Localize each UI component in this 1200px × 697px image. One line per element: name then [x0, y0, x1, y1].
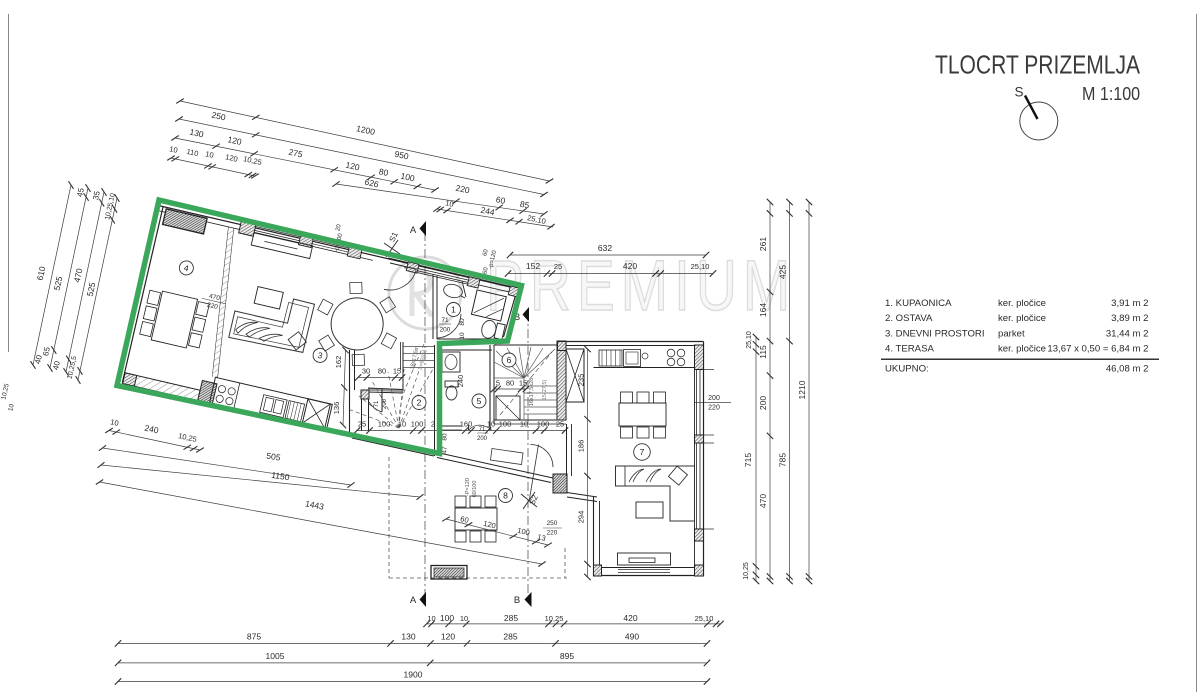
- svg-text:5: 5: [477, 396, 482, 406]
- svg-text:2: 2: [431, 420, 435, 429]
- svg-text:115: 115: [758, 345, 768, 359]
- svg-text:100: 100: [411, 420, 424, 429]
- svg-text:490: 490: [625, 631, 639, 641]
- svg-text:10: 10: [460, 614, 468, 623]
- svg-text:25: 25: [554, 262, 562, 271]
- svg-text:162: 162: [334, 356, 343, 369]
- svg-text:152: 152: [526, 261, 540, 271]
- svg-text:1900: 1900: [404, 670, 423, 680]
- svg-text:10: 10: [398, 420, 406, 429]
- svg-text:8: 8: [503, 491, 508, 501]
- svg-text:5: 5: [496, 379, 500, 388]
- svg-text:100: 100: [378, 420, 391, 429]
- svg-text:71: 71: [441, 317, 449, 324]
- svg-text:47: 47: [442, 446, 449, 454]
- svg-text:25: 25: [358, 420, 366, 429]
- svg-text:285: 285: [504, 613, 518, 623]
- svg-text:130: 130: [401, 631, 415, 641]
- svg-text:25,10: 25,10: [746, 331, 753, 349]
- svg-text:25,10: 25,10: [691, 262, 710, 271]
- svg-text:200: 200: [477, 436, 488, 442]
- svg-text:M 1:100: M 1:100: [1082, 83, 1140, 104]
- svg-text:235: 235: [577, 374, 586, 387]
- svg-text:ker. pločice: ker. pločice: [998, 313, 1046, 324]
- svg-text:A: A: [410, 595, 417, 606]
- svg-text:3,89 m 2: 3,89 m 2: [1111, 313, 1148, 324]
- svg-text:120: 120: [441, 631, 455, 641]
- svg-text:15(27,5): 15(27,5): [542, 380, 548, 401]
- svg-text:60/100: 60/100: [472, 481, 478, 498]
- svg-text:25,10: 25,10: [695, 614, 714, 623]
- svg-text:16x17,5x28: 16x17,5x28: [529, 378, 535, 406]
- svg-text:S: S: [1014, 85, 1023, 100]
- svg-text:200: 200: [440, 327, 451, 334]
- svg-text:TLOCRT PRIZEMLJA: TLOCRT PRIZEMLJA: [935, 52, 1140, 81]
- svg-text:136: 136: [332, 402, 341, 415]
- svg-text:PREMIUM: PREMIUM: [486, 246, 796, 326]
- svg-text:10: 10: [459, 332, 466, 340]
- svg-text:10: 10: [427, 614, 435, 623]
- svg-text:1: 1: [451, 305, 456, 315]
- svg-text:1. KUPAONICA: 1. KUPAONICA: [885, 298, 952, 309]
- svg-text:160: 160: [460, 420, 473, 429]
- svg-text:3. DNEVNI PROSTORI: 3. DNEVNI PROSTORI: [885, 328, 985, 339]
- svg-text:46,08 m 2: 46,08 m 2: [1106, 363, 1149, 374]
- svg-text:420: 420: [623, 613, 637, 623]
- svg-text:1210: 1210: [797, 380, 807, 399]
- svg-text:220: 220: [708, 405, 720, 412]
- svg-text:30: 30: [362, 367, 370, 376]
- svg-text:UKUPNO:: UKUPNO:: [885, 363, 929, 374]
- svg-text:ker. pločice: ker. pločice: [998, 344, 1046, 355]
- svg-text:80: 80: [459, 318, 466, 326]
- svg-text:285: 285: [503, 631, 517, 641]
- svg-text:785: 785: [778, 453, 788, 467]
- svg-text:2: 2: [417, 398, 422, 408]
- svg-text:240: 240: [456, 375, 465, 388]
- svg-text:715: 715: [743, 453, 753, 467]
- svg-text:4. TERASA: 4. TERASA: [885, 344, 934, 355]
- svg-text:15: 15: [393, 367, 401, 376]
- svg-text:420: 420: [623, 261, 637, 271]
- svg-text:250: 250: [547, 520, 558, 527]
- svg-text:31,44 m 2: 31,44 m 2: [1106, 328, 1149, 339]
- svg-text:200: 200: [758, 396, 768, 410]
- svg-text:A: A: [410, 225, 417, 236]
- svg-text:895: 895: [560, 651, 574, 661]
- svg-text:470: 470: [758, 494, 768, 508]
- svg-text:ker. pločice: ker. pločice: [998, 298, 1046, 309]
- svg-text:3,91 m 2: 3,91 m 2: [1111, 298, 1148, 309]
- svg-text:B: B: [514, 595, 520, 606]
- svg-text:294: 294: [577, 511, 586, 524]
- svg-text:425: 425: [778, 265, 788, 279]
- svg-text:7: 7: [640, 447, 645, 457]
- svg-text:10,25: 10,25: [545, 614, 564, 623]
- svg-text:875: 875: [247, 631, 261, 641]
- svg-text:13,67 x 0,50 = 6,84 m 2: 13,67 x 0,50 = 6,84 m 2: [1047, 344, 1148, 355]
- svg-text:200: 200: [708, 395, 720, 402]
- svg-text:1005: 1005: [266, 651, 285, 661]
- svg-text:-P=120: -P=120: [465, 478, 471, 496]
- svg-text:200: 200: [382, 398, 388, 409]
- svg-text:80: 80: [378, 367, 386, 376]
- svg-text:80: 80: [442, 433, 449, 441]
- svg-text:186: 186: [577, 440, 586, 453]
- svg-text:261: 261: [758, 237, 768, 251]
- svg-text:164: 164: [758, 303, 768, 317]
- svg-text:71: 71: [374, 400, 380, 407]
- svg-text:80: 80: [506, 379, 514, 388]
- svg-text:220: 220: [547, 530, 558, 537]
- svg-text:2. OSTAVA: 2. OSTAVA: [885, 313, 933, 324]
- svg-text:100: 100: [440, 613, 454, 623]
- svg-text:6: 6: [507, 355, 512, 365]
- svg-text:15: 15: [519, 379, 527, 388]
- svg-text:71: 71: [479, 427, 486, 433]
- svg-text:10,25: 10,25: [743, 562, 750, 580]
- svg-text:632: 632: [598, 243, 612, 253]
- svg-text:parket: parket: [998, 328, 1025, 339]
